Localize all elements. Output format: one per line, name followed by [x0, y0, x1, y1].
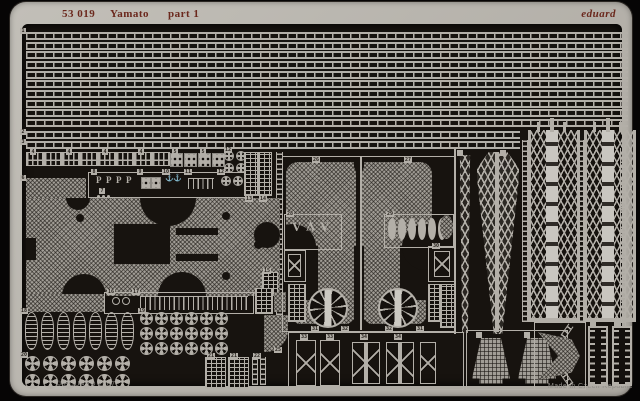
part-label: 3 — [20, 139, 26, 145]
davit-part: P — [96, 176, 102, 185]
part-label: 34 — [360, 334, 368, 340]
small-fitting — [107, 195, 110, 198]
part-label: 31 — [416, 326, 424, 332]
part-label: 33 — [326, 334, 334, 340]
part-label: 32 — [385, 326, 393, 332]
cable-reel-grid-20 — [25, 356, 130, 389]
clip-part — [151, 177, 161, 189]
part-label: 4 — [30, 149, 36, 155]
v-support-part: V — [306, 222, 315, 231]
hatch-grille — [205, 357, 226, 389]
part-label: 27 — [404, 157, 412, 163]
oval-plate — [440, 215, 453, 239]
part-label: 5 — [172, 149, 178, 155]
part-label: 15 — [263, 268, 271, 274]
part-label-unreadable — [524, 332, 530, 338]
stanchion-row-part — [140, 296, 248, 310]
deck-extension — [26, 178, 86, 200]
part-label: 8 — [91, 169, 97, 175]
deck-platform — [26, 198, 280, 296]
part-label: 4 — [66, 149, 72, 155]
part-label: 31 — [311, 326, 319, 332]
part-label-unreadable — [614, 322, 620, 328]
cable-reel-grid-12 — [224, 151, 246, 173]
catapult-girder-2 — [584, 130, 636, 322]
clip-part — [141, 177, 151, 189]
cable-reel — [233, 176, 243, 186]
part-label: 4 — [138, 149, 144, 155]
yardarm-support — [420, 342, 436, 384]
catalog-number: 53 019 — [62, 8, 95, 20]
part-label: 2 — [20, 129, 26, 135]
part-label: 12 — [224, 147, 232, 153]
part-label: 13 — [245, 196, 253, 202]
float-basket-row — [25, 312, 134, 350]
part-label: 21 — [207, 353, 215, 359]
pin-row-part — [188, 178, 214, 189]
vent-panel — [255, 288, 273, 314]
ladder-tower — [588, 326, 608, 386]
part-label: 14 — [259, 196, 267, 202]
product-title: Yamato — [110, 8, 149, 20]
crane-spine — [495, 152, 499, 332]
part-label-unreadable — [457, 150, 463, 156]
funnel-cap-disc — [378, 288, 418, 328]
part-label: 12 — [217, 169, 225, 175]
yardarm-support-33 — [320, 340, 340, 386]
part-label: 25 — [274, 347, 282, 353]
part-label: 34 — [394, 334, 402, 340]
v-support-part: V — [320, 222, 329, 231]
part-label: 20 — [20, 352, 28, 358]
cable-reel — [221, 176, 231, 186]
v-support-part: V — [292, 222, 301, 231]
ladder-part — [252, 357, 258, 385]
part-label: 26 — [312, 157, 320, 163]
part-label: 19 — [138, 308, 146, 314]
part-label: 33 — [300, 334, 308, 340]
part-label: 4 — [102, 149, 108, 155]
small-fitting — [102, 195, 105, 198]
part-label: 30 — [432, 243, 440, 249]
part-label-unreadable — [500, 150, 506, 156]
vent-panel — [440, 284, 455, 328]
part-label: 18 — [20, 308, 28, 314]
anchor-part: ⚓ — [173, 175, 182, 183]
ladder-part — [260, 357, 266, 385]
davit-part: P — [126, 176, 132, 185]
part-label-unreadable — [476, 332, 482, 338]
bowtie-support — [288, 254, 301, 277]
davit-part: P — [116, 176, 122, 185]
vent-panel-14 — [258, 152, 272, 196]
part-label: 29 — [386, 211, 394, 217]
yardarm-support-33 — [296, 340, 316, 386]
part-label: 5 — [200, 149, 206, 155]
part-label: 7 — [99, 188, 105, 194]
part-label: 6 — [20, 175, 26, 181]
part-label: 10 — [162, 169, 170, 175]
part-label: 22 — [253, 353, 261, 359]
part-label: 28 — [286, 211, 294, 217]
part-label: 17 — [132, 289, 140, 295]
part-label-unreadable — [590, 322, 596, 328]
ring-part — [122, 297, 130, 305]
part-label: 11 — [184, 169, 192, 175]
railing-strip-3 — [26, 141, 520, 149]
small-fitting — [97, 195, 100, 198]
bowtie-support — [434, 251, 450, 277]
catapult-girder-1 — [528, 130, 580, 322]
deck-lobe — [26, 294, 104, 312]
vent-grille-31 — [288, 284, 306, 322]
hatch-grille — [228, 357, 249, 389]
part-label: 32 — [341, 326, 349, 332]
part-label: 21 — [230, 353, 238, 359]
part-subtitle: part 1 — [168, 8, 199, 20]
part-label: 1 — [20, 28, 26, 34]
ring-part — [112, 297, 120, 305]
railing-strip-2 — [26, 131, 520, 139]
funnel-cap-disc — [308, 288, 348, 328]
part-label: 9 — [137, 169, 143, 175]
photoetch-sheet-photo: 53 019 Yamato part 1 eduard © EDUARD 200… — [0, 0, 640, 401]
ladder-tower — [612, 326, 632, 386]
oval-parts-row — [388, 218, 446, 240]
yardarm-support-34 — [386, 342, 414, 384]
brand-logo: eduard — [581, 8, 616, 20]
davit-part: P — [106, 176, 112, 185]
vent-panel-13 — [244, 152, 258, 196]
part-label: 16 — [107, 289, 115, 295]
yardarm-support-34 — [352, 342, 380, 384]
cable-reel-grid-19 — [140, 312, 228, 355]
